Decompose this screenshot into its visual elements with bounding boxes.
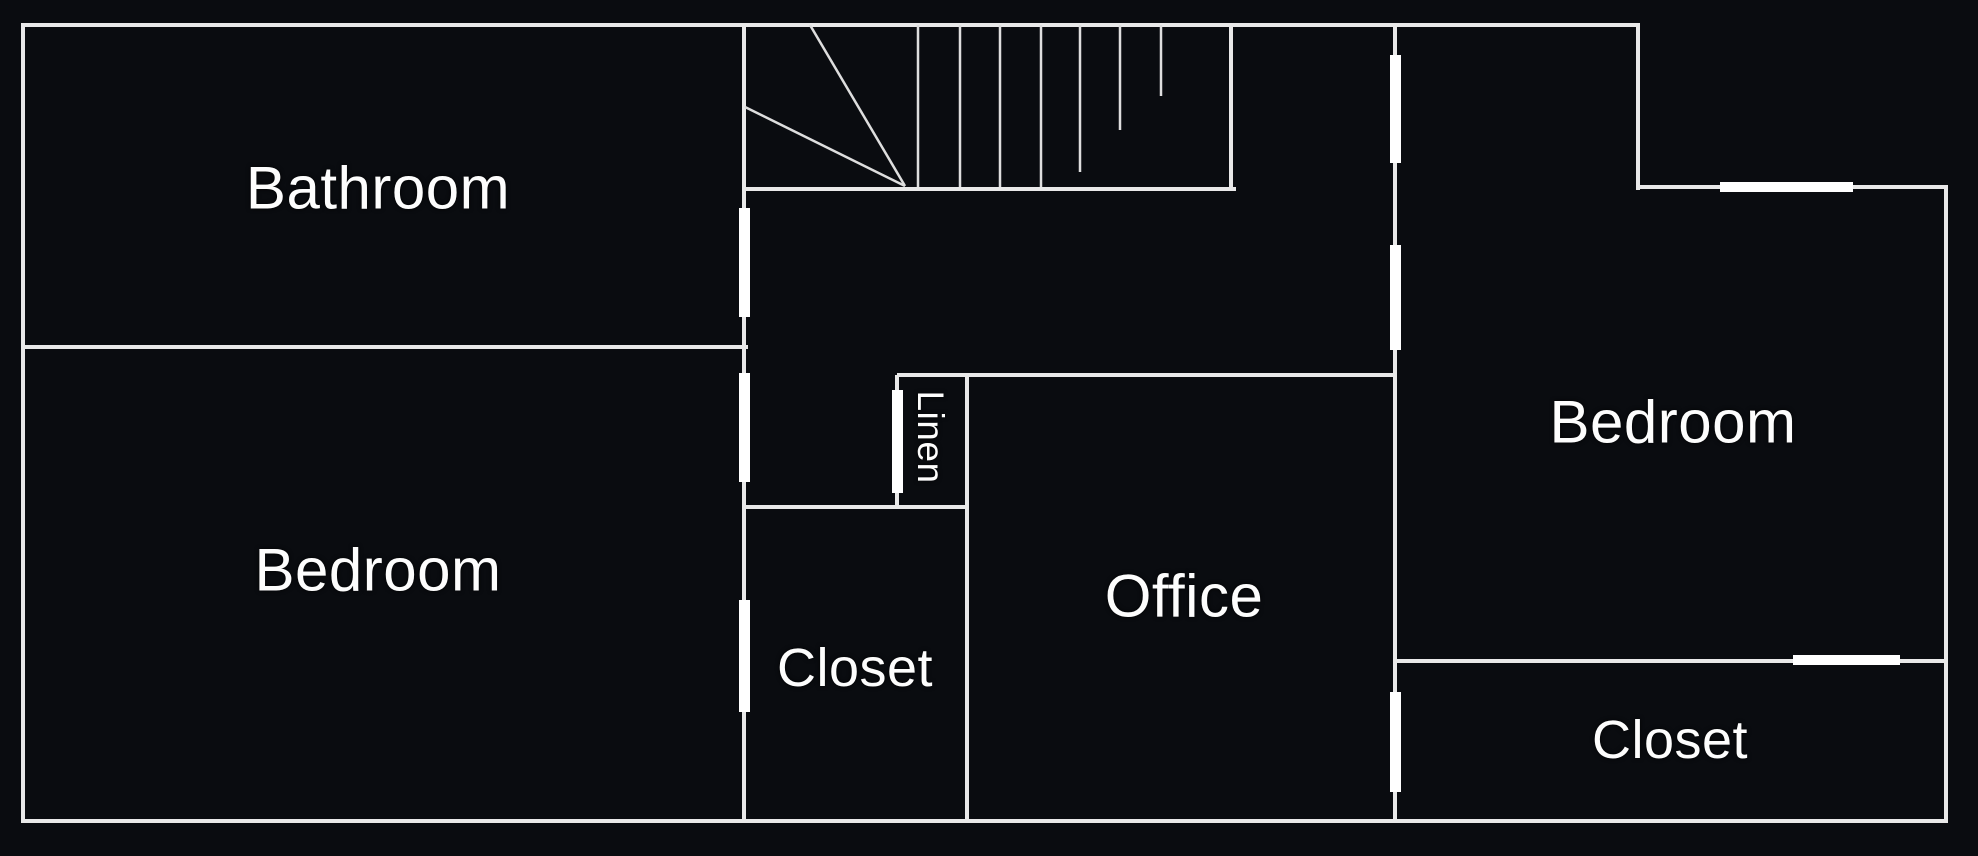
office-top-wall — [897, 373, 1397, 377]
closet-office-divider — [965, 373, 969, 819]
room-label-office: Office — [1105, 562, 1264, 631]
closet-right-door-opening — [1390, 692, 1401, 792]
room-label-closet-left: Closet — [777, 637, 933, 699]
bedroom-left-door-opening — [739, 373, 750, 482]
bedroom-right-door-opening — [1390, 245, 1401, 350]
room-label-bedroom-left: Bedroom — [255, 536, 502, 605]
closet-left-top-wall — [745, 505, 969, 509]
room-label-linen: Linen — [909, 390, 951, 483]
bathroom-door-opening — [739, 208, 750, 317]
stairwell-bottom-wall — [745, 187, 1236, 191]
room-label-bathroom: Bathroom — [246, 154, 510, 223]
outer-bottom-wall — [21, 819, 1948, 823]
floor-plan: Bathroom Bedroom Closet Linen Office Bed… — [0, 0, 1978, 856]
closet-left-door-opening — [739, 600, 750, 712]
outer-top-wall — [21, 23, 1640, 27]
upper-right-step-wall — [1636, 23, 1640, 190]
bathroom-bedroom-divider — [21, 345, 748, 349]
outer-left-wall — [21, 23, 25, 823]
outer-right-wall — [1944, 187, 1948, 823]
bedroom-right-window — [1720, 182, 1853, 192]
room-label-closet-right: Closet — [1592, 709, 1748, 771]
linen-door-opening — [892, 390, 903, 493]
closet-right-opening — [1793, 655, 1900, 665]
hall-top-door-opening — [1390, 55, 1401, 163]
stairwell-right-wall — [1229, 23, 1233, 191]
room-label-bedroom-right: Bedroom — [1550, 388, 1797, 457]
